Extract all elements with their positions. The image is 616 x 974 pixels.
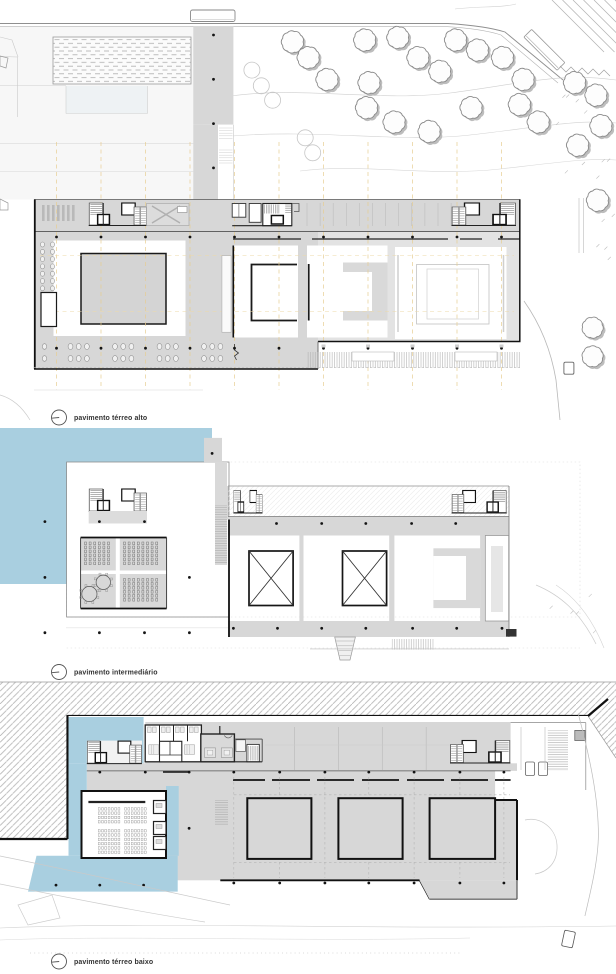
svg-text:pavimento térreo baixo: pavimento térreo baixo [74, 959, 153, 966]
svg-text:pavimento intermediário: pavimento intermediário [74, 670, 158, 677]
svg-text:pavimento térreo alto: pavimento térreo alto [74, 415, 147, 422]
